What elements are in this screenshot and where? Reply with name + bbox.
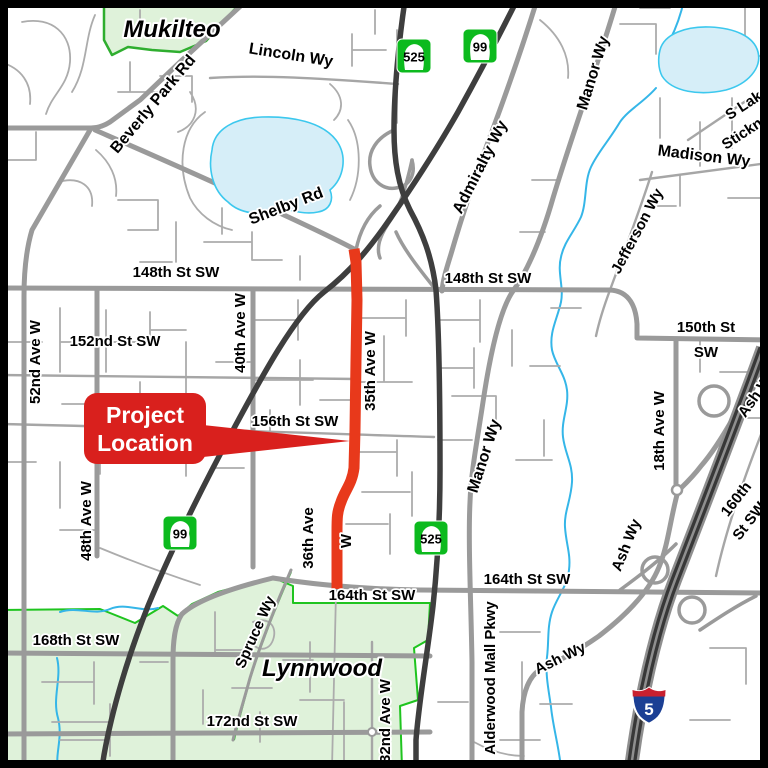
callout-line2: Location bbox=[97, 430, 193, 456]
svg-text:99: 99 bbox=[473, 40, 487, 55]
street-label-admiralty-wy: Admiralty Wy bbox=[450, 118, 511, 217]
sr99-shield-west: 99 bbox=[163, 516, 197, 550]
street-label-jefferson-wy: Jefferson Wy bbox=[608, 185, 667, 276]
street-label-48th-ave-w: 48th Ave W bbox=[78, 480, 95, 561]
street-label-164th-st-sw-east: 164th St SW bbox=[484, 571, 572, 588]
172nd-road bbox=[0, 732, 430, 734]
map-canvas: Mukilteo Lynnwood Lincoln Wy Beverly Par… bbox=[0, 0, 768, 768]
roundabout-ash-18th bbox=[672, 485, 682, 495]
street-label-18th-ave-w: 18th Ave W bbox=[651, 390, 668, 471]
sr99-shield-north: 99 bbox=[463, 29, 497, 63]
city-label-lynnwood: Lynnwood bbox=[262, 655, 383, 682]
svg-text:525: 525 bbox=[403, 50, 425, 65]
street-label-36th-ave-w-suffix: W bbox=[338, 533, 355, 548]
street-label-manor-wy-north: Manor Wy bbox=[574, 34, 613, 112]
interchange-ramps bbox=[356, 130, 756, 630]
street-label-40th-ave-w: 40th Ave W bbox=[232, 292, 249, 373]
street-label-alderwood-mall-pkwy: Alderwood Mall Pkwy bbox=[482, 601, 499, 755]
svg-text:5: 5 bbox=[644, 700, 653, 719]
street-label-148th-st-sw-west: 148th St SW bbox=[133, 264, 221, 281]
street-label-152nd-st-sw: 152nd St SW bbox=[70, 333, 162, 350]
street-label-172nd-st-sw: 172nd St SW bbox=[207, 713, 299, 730]
sr525-shield-north: 525 bbox=[397, 39, 431, 73]
city-label-mukilteo: Mukilteo bbox=[123, 16, 220, 43]
callout-line1: Project bbox=[106, 402, 184, 428]
street-label-ash-wy-middle: Ash Wy bbox=[608, 516, 645, 574]
sr525-shield-south: 525 bbox=[414, 521, 448, 555]
svg-text:525: 525 bbox=[420, 532, 442, 547]
street-label-164th-st-sw-west: 164th St SW bbox=[329, 587, 417, 604]
street-label-manor-wy-south: Manor Wy bbox=[465, 417, 505, 495]
project-location-map: Mukilteo Lynnwood Lincoln Wy Beverly Par… bbox=[0, 0, 768, 768]
street-label-168th-st-sw: 168th St SW bbox=[33, 632, 121, 649]
street-label-150th-st-line2: SW bbox=[694, 344, 719, 361]
street-label-148th-st-sw-east: 148th St SW bbox=[445, 270, 533, 287]
street-label-32nd-ave-w: 32nd Ave W bbox=[377, 678, 394, 763]
lake-northeast bbox=[659, 27, 759, 93]
street-label-lincoln-wy: Lincoln Wy bbox=[248, 40, 335, 70]
street-label-52nd-ave-w: 52nd Ave W bbox=[27, 319, 44, 404]
street-label-ash-wy-south: Ash Wy bbox=[532, 639, 589, 679]
street-label-150th-st-line1: 150th St bbox=[677, 319, 735, 336]
roundabout-172nd bbox=[368, 728, 376, 736]
street-label-36th-ave: 36th Ave bbox=[300, 507, 317, 568]
street-label-35th-ave-w: 35th Ave W bbox=[362, 330, 379, 411]
svg-text:99: 99 bbox=[173, 527, 187, 542]
street-label-156th-st-sw: 156th St SW bbox=[252, 413, 340, 430]
